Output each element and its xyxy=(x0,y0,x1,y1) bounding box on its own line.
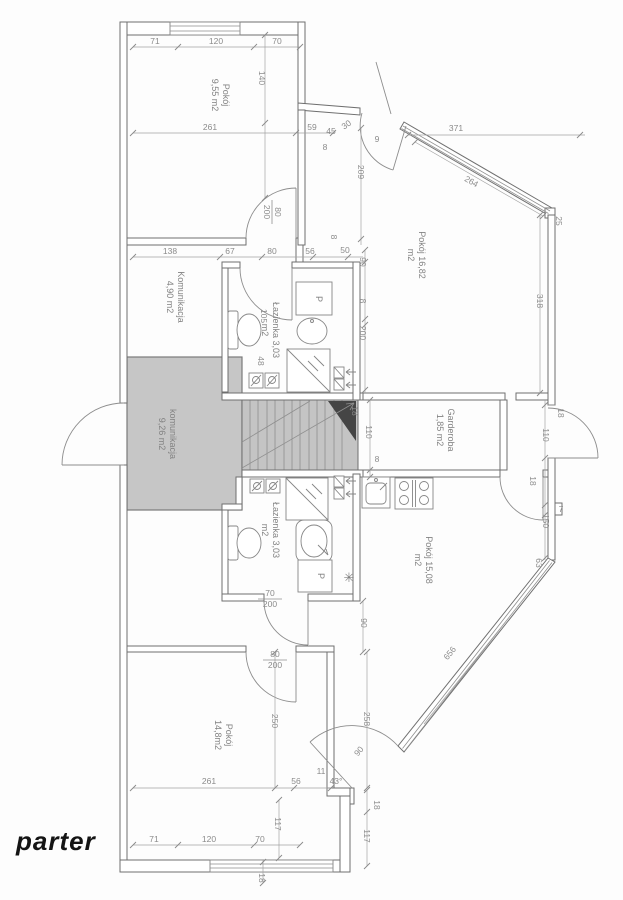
dim-label: 45 xyxy=(326,126,336,136)
svg-text:m2: m2 xyxy=(260,324,270,337)
svg-text:Pokój: Pokój xyxy=(224,724,234,747)
dim-label: 30 xyxy=(340,118,354,132)
dim-label: 117 xyxy=(362,829,372,843)
dim-label: 71 xyxy=(150,36,160,46)
room-label-pokoj-ne: Pokój 16,82 m2 xyxy=(406,231,427,279)
svg-text:1,85 m2: 1,85 m2 xyxy=(435,414,445,447)
dim-label: 250 xyxy=(270,714,280,728)
dim-label: 8 xyxy=(375,454,380,464)
room-label-pokoj-nw: Pokój 9,55 m2 xyxy=(210,79,231,112)
dim-label: 261 xyxy=(203,122,217,132)
svg-text:Pokój 15,08: Pokój 15,08 xyxy=(424,536,434,584)
dim-label: 59 xyxy=(307,122,317,132)
dim-label: 18 xyxy=(372,800,382,810)
dim-label: 80 xyxy=(267,246,277,256)
svg-text:Pokój: Pokój xyxy=(221,84,231,107)
svg-text:4,90 m2: 4,90 m2 xyxy=(165,281,175,314)
kitchen-fixtures xyxy=(362,477,433,509)
svg-text:m2: m2 xyxy=(260,524,270,537)
toilet-bowl xyxy=(237,528,261,558)
boiler-symbol: ✳ xyxy=(344,570,355,585)
room-label-komunikacja-hall: Komunikacja 4,90 m2 xyxy=(165,271,186,323)
door-entry-top xyxy=(360,62,406,170)
dim-label: 264 xyxy=(463,174,481,190)
svg-text:Łazienka 3,03: Łazienka 3,03 xyxy=(271,302,281,358)
window-bottom xyxy=(210,860,333,872)
dim-label: 8 xyxy=(329,235,339,240)
dim-label: 90 xyxy=(352,744,366,758)
dim-label: 8 xyxy=(323,142,328,152)
dim-label: 48 xyxy=(256,356,266,366)
dim-label: 656 xyxy=(441,644,458,662)
door-label-80-200-sw: 80 200 xyxy=(263,649,287,670)
door-se-diagonal xyxy=(310,726,398,788)
door-height: 200 xyxy=(268,660,282,670)
dim-label: 18 xyxy=(528,476,538,486)
door-entrance-right xyxy=(548,408,598,458)
window-top xyxy=(170,22,240,35)
dim-label: 18 xyxy=(556,408,566,418)
dim-label: 318 xyxy=(535,294,545,308)
door-height: 200 xyxy=(262,205,272,219)
dim-label: 120 xyxy=(202,834,216,844)
sink xyxy=(297,318,327,344)
dim-label: 105 xyxy=(259,309,269,323)
floorplan-canvas: 71 120 70 140 261 59 45 30 9 8 209 371 2… xyxy=(0,0,623,900)
floorplan-drawing: 71 120 70 140 261 59 45 30 9 8 209 371 2… xyxy=(0,0,623,900)
dim-label: 200 xyxy=(358,326,368,340)
svg-text:9,26 m2: 9,26 m2 xyxy=(157,418,167,451)
dim-label: 56 xyxy=(305,246,315,256)
dim-label: 56 xyxy=(291,776,301,786)
dim-label: 25 xyxy=(554,216,564,226)
door-width: 80 xyxy=(273,207,283,217)
dim-label: 11 xyxy=(317,766,326,776)
room-label-lazienka-lower: Łazienka 3,03 m2 xyxy=(260,502,281,558)
svg-text:Komunikacja: Komunikacja xyxy=(176,271,186,323)
dim-label: 50 xyxy=(340,245,350,255)
dim-label: 90 xyxy=(358,257,368,267)
dim-label: 371 xyxy=(449,123,463,133)
svg-text:m2: m2 xyxy=(413,554,423,567)
dim-label: 120 xyxy=(209,36,223,46)
toilet-tank xyxy=(228,526,238,560)
toilet-tank xyxy=(228,311,238,349)
svg-text:m2: m2 xyxy=(406,249,416,262)
dim-label: 140 xyxy=(257,71,267,85)
toilet-bowl xyxy=(237,314,261,346)
door-width: 80 xyxy=(270,649,280,659)
door-entrance-left xyxy=(62,403,124,465)
washer-label: P xyxy=(314,296,324,302)
svg-text:14,8m2: 14,8m2 xyxy=(213,720,223,750)
dim-label: 150 xyxy=(541,514,551,528)
dim-label: 70 xyxy=(255,834,265,844)
svg-text:komunikacja: komunikacja xyxy=(168,409,178,459)
staircase xyxy=(242,400,358,470)
dim-label: 258 xyxy=(362,712,372,726)
dim-label: 209 xyxy=(356,165,366,179)
dim-label: 117 xyxy=(273,817,283,831)
dim-label: 63 xyxy=(534,558,544,568)
dim-label: 8 xyxy=(358,299,368,304)
dim-label: 71 xyxy=(149,834,159,844)
dim-label: 18 xyxy=(257,873,267,883)
dim-label: 110 xyxy=(364,425,374,439)
door-width: 70 xyxy=(265,588,275,598)
svg-text:9,55 m2: 9,55 m2 xyxy=(210,79,220,112)
room-label-pokoj-se: Pokój 15,08 m2 xyxy=(413,536,434,584)
dim-label: 18 xyxy=(350,406,360,416)
dim-label: 9 xyxy=(375,134,380,144)
dim-label: 110 xyxy=(541,428,551,442)
dim-label: 7 xyxy=(559,504,564,514)
sink xyxy=(301,525,327,557)
washing-machine xyxy=(296,282,332,315)
dim-label: 261 xyxy=(202,776,216,786)
plan-title: parter xyxy=(16,826,96,857)
door-label-80-200: 80 200 xyxy=(262,200,283,224)
dim-label: 43° xyxy=(330,776,343,786)
svg-text:Garderoba: Garderoba xyxy=(446,408,456,451)
door-height: 200 xyxy=(263,599,277,609)
svg-text:Pokój 16,82: Pokój 16,82 xyxy=(417,231,427,279)
washer-label: P xyxy=(316,573,326,579)
room-label-pokoj-sw: Pokój 14,8m2 xyxy=(213,720,234,750)
dim-label: 138 xyxy=(163,246,177,256)
dim-label: 67 xyxy=(225,246,235,256)
dim-label: 90 xyxy=(359,618,369,628)
svg-text:Łazienka 3,03: Łazienka 3,03 xyxy=(271,502,281,558)
dim-label: 70 xyxy=(272,36,282,46)
room-label-garderoba: Garderoba 1,85 m2 xyxy=(435,408,456,451)
